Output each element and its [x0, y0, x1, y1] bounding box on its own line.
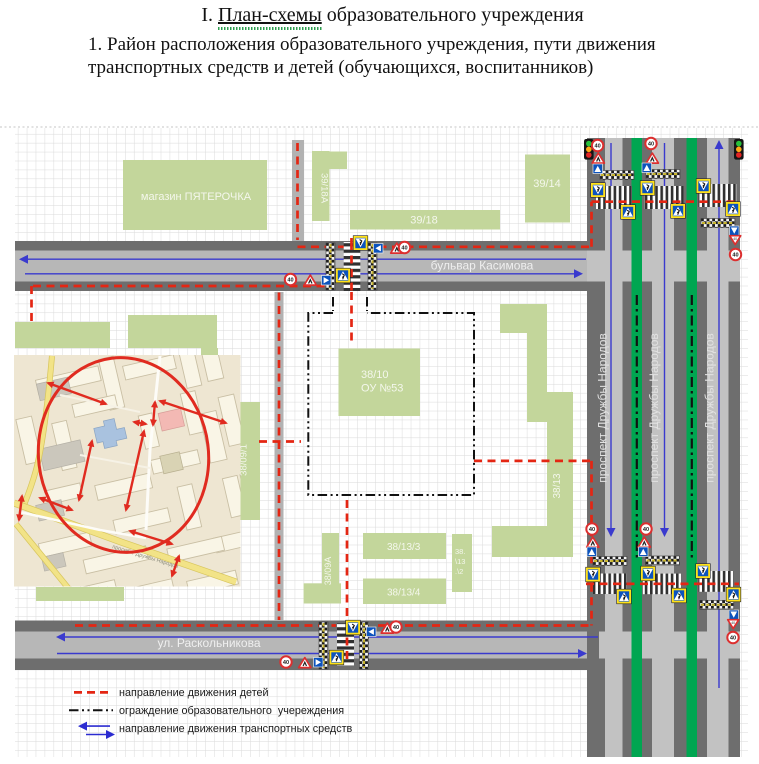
svg-text:проспект Дружбы Народов: проспект Дружбы Народов	[647, 333, 661, 483]
svg-text:направление движения детей: направление движения детей	[119, 687, 269, 699]
svg-text:.\2: .\2	[455, 567, 463, 576]
svg-text:бульвар Касимова: бульвар Касимова	[431, 259, 534, 273]
svg-text:38/13/3: 38/13/3	[387, 542, 421, 553]
svg-text:проспект Дружбы Народов: проспект Дружбы Народов	[596, 333, 610, 483]
svg-text:ул. Раскольникова: ул. Раскольникова	[157, 636, 260, 650]
svg-text:ограждение образовательного у: ограждение образовательного учереждения	[119, 705, 344, 717]
svg-text:магазин ПЯТЕРОЧКА: магазин ПЯТЕРОЧКА	[141, 191, 252, 203]
svg-text:39/18: 39/18	[410, 215, 438, 227]
svg-text:38/13: 38/13	[552, 473, 563, 498]
svg-text:38/13/4: 38/13/4	[387, 588, 421, 599]
svg-text:проспект Дружбы Народов: проспект Дружбы Народов	[703, 333, 717, 483]
svg-text:ОУ №53: ОУ №53	[361, 383, 403, 395]
svg-text:39/18А: 39/18А	[319, 173, 330, 204]
svg-text:38.: 38.	[455, 547, 465, 556]
svg-text:39/14: 39/14	[533, 178, 561, 190]
svg-text:направление движения транспорт: направление движения транспортных средст…	[119, 723, 353, 735]
svg-text:\13: \13	[455, 557, 465, 566]
svg-text:38/09А: 38/09А	[323, 557, 333, 586]
svg-text:38/10: 38/10	[361, 369, 389, 381]
